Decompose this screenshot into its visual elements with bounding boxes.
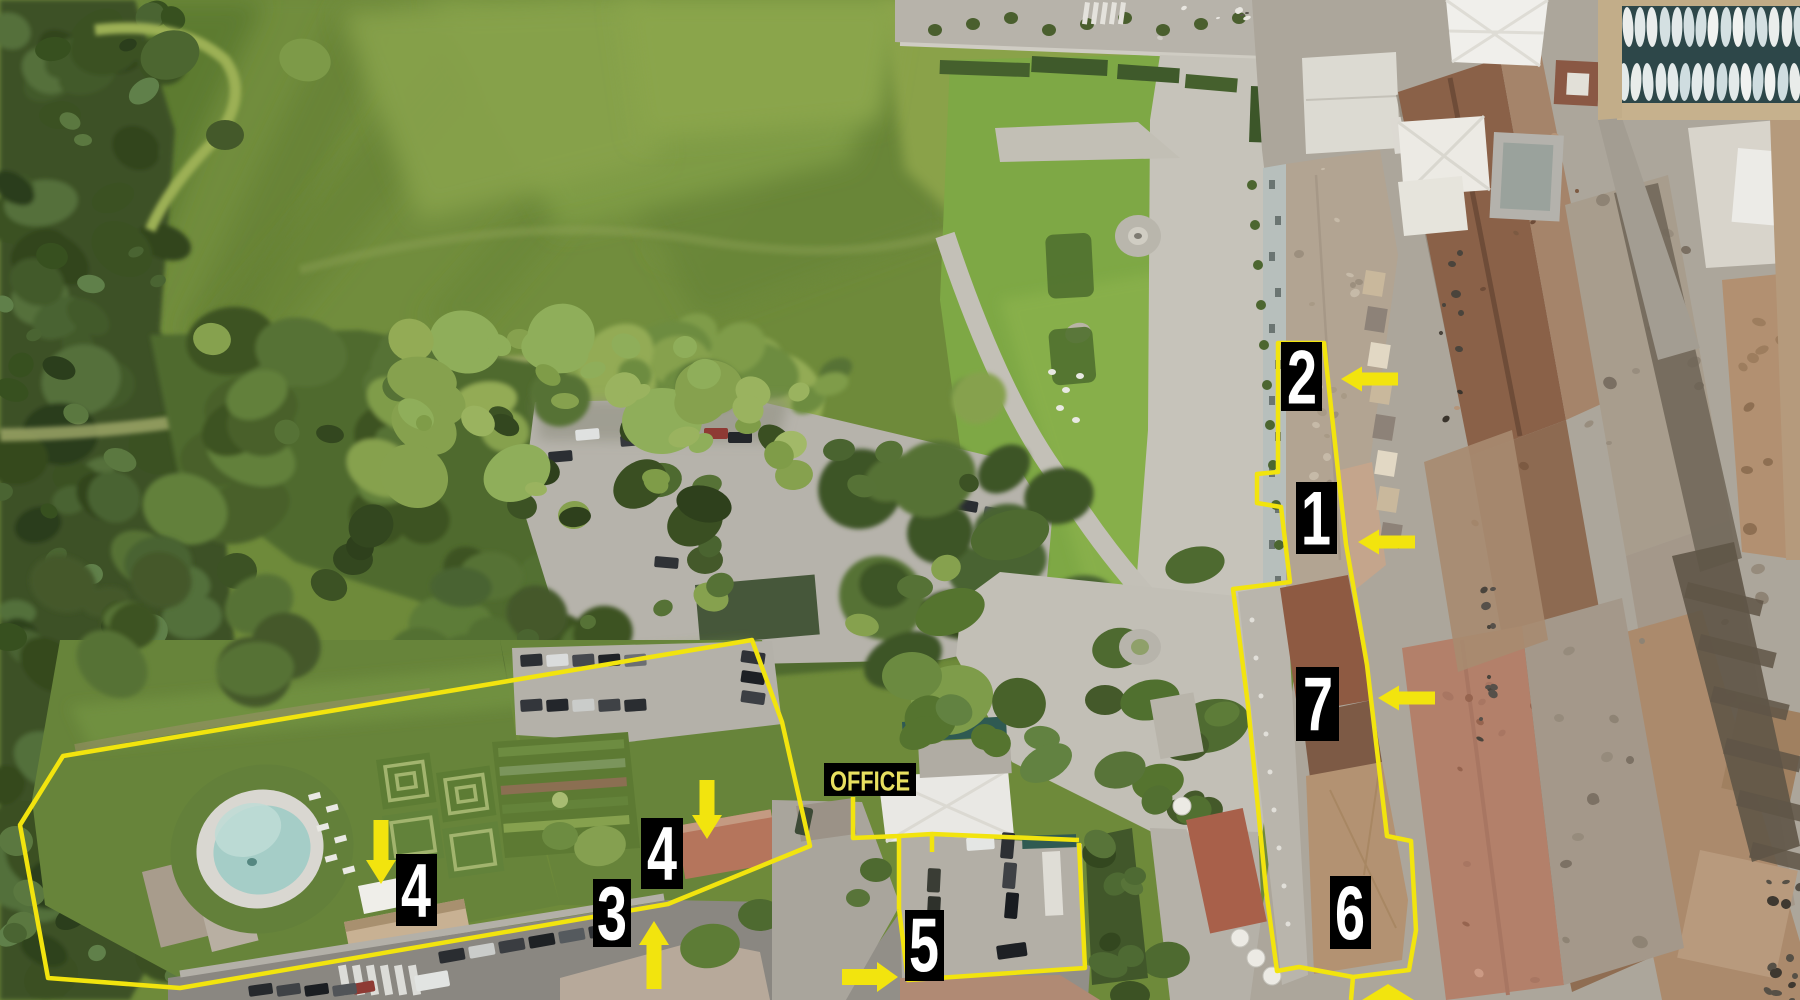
- svg-text:5: 5: [909, 904, 939, 989]
- svg-text:4: 4: [647, 812, 677, 897]
- svg-text:6: 6: [1335, 872, 1365, 957]
- svg-text:4: 4: [401, 849, 431, 934]
- svg-text:OFFICE: OFFICE: [830, 766, 910, 797]
- svg-text:1: 1: [1301, 477, 1331, 562]
- svg-text:3: 3: [597, 872, 627, 957]
- svg-text:7: 7: [1303, 663, 1333, 748]
- svg-text:2: 2: [1287, 336, 1317, 421]
